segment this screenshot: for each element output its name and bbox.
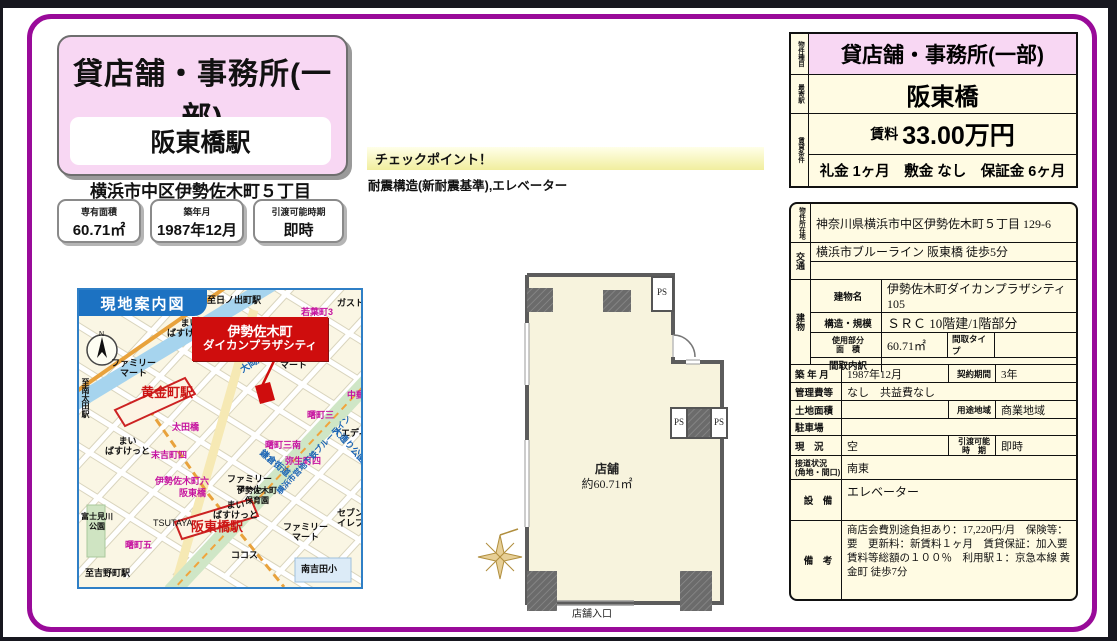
detail-contract-value: 3年 [996, 365, 1076, 382]
detail-equipment-value: エレベーター [842, 480, 1076, 520]
summary-station-value: 阪東橋 [809, 75, 1076, 113]
stat-built: 築年月 1987年12月 [150, 199, 244, 243]
plan-entrance-label: 店舗入口 [552, 605, 632, 620]
detail-mgmt-value: なし 共益費なし [842, 383, 1076, 400]
map-label-tsutaya: TSUTAYA [153, 518, 193, 528]
summary-type-value: 貸店舗・事務所(一部) [809, 34, 1076, 74]
detail-building-name-value: 伊勢佐木町ダイカンプラザシティ 105 [882, 280, 1076, 312]
plan-room-area: 約60.71㎡ [562, 475, 652, 492]
detail-building-label: 建物 [791, 280, 811, 364]
property-type-box: 貸店舗・事務所(一部) 阪東橋駅 [57, 35, 348, 176]
stat-handover: 引渡可能時期 即時 [253, 199, 344, 243]
detail-zoning-label: 用途地域 [949, 401, 996, 418]
map-label-familymart-4: ファミリー マート [283, 522, 328, 542]
area-map: N 現地案内図 至日ノ出町駅 若葉町3 ガスト まい ばすけっと ファミリー マ… [77, 288, 363, 589]
detail-used-area-label: 使用部分 面 積 [811, 333, 882, 357]
detail-location-value: 神奈川県横浜市中区伊勢佐木町５丁目 129-6 [811, 204, 1076, 242]
map-label-to-yoshinocho: 至吉野町駅 [85, 568, 130, 578]
map-label-to-minamiota: 至南太田駅 [80, 378, 90, 418]
page-frame: 貸店舗・事務所(一部) 阪東橋駅 横浜市中区伊勢佐木町５丁目 専有面積 60.7… [0, 0, 1117, 641]
detail-built-label: 築 年 月 [791, 365, 842, 382]
detail-built-value: 1987年12月 [842, 365, 949, 382]
summary-rent-value: 33.00万円 [902, 116, 1015, 152]
summary-rent-label: 賃料 [870, 124, 898, 144]
floor-plan: 店舗 約60.71㎡ PS PS PS 店舗入口 [442, 265, 762, 637]
map-label-seven: セブン イレブン [337, 508, 363, 528]
map-label-to-hinodecho: 至日ノ出町駅 [207, 295, 261, 305]
flyer-sheet: 貸店舗・事務所(一部) 阪東橋駅 横浜市中区伊勢佐木町５丁目 専有面積 60.7… [27, 14, 1097, 632]
detail-layout-type-label: 間取タイプ [948, 333, 995, 357]
map-label-maibasuketto-3: まい ばすけっと [213, 500, 258, 520]
detail-zoning-value: 商業地域 [996, 401, 1076, 418]
map-label-nakayubin: 中郵 [347, 390, 363, 400]
detail-location-label: 物件所在地 [791, 204, 811, 242]
map-label-fujimigawa-park: 富士見川 公園 [81, 512, 113, 532]
stat-area-label: 専有面積 [59, 205, 139, 218]
map-label-ota-bashi: 太田橋 [172, 422, 199, 432]
summary-table: 物件種目 貸店舗・事務所(一部) 最寄駅 阪東橋 賃貸条件 賃料 33.00万円… [789, 32, 1078, 188]
detail-contract-label: 契約期間 [949, 365, 996, 382]
detail-status-label: 現 況 [791, 436, 842, 455]
stat-built-label: 築年月 [152, 205, 242, 218]
detail-land-label: 土地面積 [791, 401, 842, 418]
map-property-callout: 伊勢佐木町 ダイカンプラザシティ [192, 317, 328, 361]
detail-access-value: 横浜市ブルーライン 阪東橋 徒歩5分 [811, 243, 1076, 261]
station-name-box: 阪東橋駅 [70, 117, 331, 165]
summary-terms-label: 賃貸条件 [791, 114, 809, 186]
detail-access-label: 交通 [791, 243, 811, 279]
summary-terms-value: 礼金 1ヶ月 敷金 なし 保証金 6ヶ月 [809, 155, 1076, 186]
detail-handover-label: 引渡可能 時 期 [949, 436, 996, 455]
detail-layout-type-value [995, 333, 1076, 357]
plan-ps-right: PS [703, 417, 735, 427]
detail-status-value: 空 [842, 436, 949, 455]
detail-parking-label: 駐車場 [791, 419, 842, 435]
map-label-gusto: ガスト [337, 298, 363, 308]
map-callout-line2: ダイカンプラザシティ [192, 339, 328, 354]
summary-station-label: 最寄駅 [791, 75, 809, 113]
stat-handover-value: 即時 [255, 219, 342, 240]
map-label-familymart-1: ファミリー マート [111, 358, 156, 378]
detail-structure-value: ＳＲＣ 10階建/1階部分 [882, 313, 1076, 332]
detail-mgmt-label: 管理費等 [791, 383, 842, 400]
detail-remarks-label: 備 考 [791, 521, 842, 599]
checkpoint-bar: チェックポイント！ [367, 147, 764, 170]
map-label-koganecho-station: 黄金町駅 [141, 388, 193, 398]
map-label-cocos: ココス [231, 550, 258, 560]
detail-structure-label: 構造・規模 [811, 313, 882, 332]
map-label-minamiyoshida: 南吉田小 [301, 564, 337, 574]
floor-plan-graphics [442, 265, 762, 637]
plan-compass [478, 529, 522, 579]
detail-used-area-value: 60.71㎡ [882, 333, 948, 357]
map-label-sueyoshicho4: 末吉町四 [151, 450, 187, 460]
detail-building-name-label: 建物名 [811, 280, 882, 312]
detail-remarks-value: 商店会費別途負担あり：17,220円/月 保険等：要 更新料：新賃料１ヶ月 賃貸… [842, 521, 1076, 599]
map-label-maibasuketto-2: まい ばすけっと [105, 436, 150, 456]
stat-area-value: 60.71㎡ [59, 219, 139, 240]
detail-road-value: 南東 [842, 456, 1076, 479]
stat-handover-label: 引渡可能時期 [255, 205, 342, 218]
detail-table: 物件所在地 神奈川県横浜市中区伊勢佐木町５丁目 129-6 交通 横浜市ブルーラ… [789, 202, 1078, 601]
map-label-akebonocho3s: 曙町三南 [265, 440, 301, 450]
stat-area: 専有面積 60.71㎡ [57, 199, 141, 243]
map-label-bandobashi: 阪東橋 [179, 488, 206, 498]
stat-built-value: 1987年12月 [152, 219, 242, 240]
checkpoint-text: 耐震構造(新耐震基準),エレベーター [368, 175, 768, 194]
detail-handover-value: 即時 [996, 436, 1076, 455]
plan-ps-left: PS [663, 417, 695, 427]
detail-parking-value [842, 419, 1076, 435]
detail-road-label: 接道状況 (角地・間口) [791, 456, 842, 479]
svg-text:N: N [99, 331, 104, 338]
map-label-isezakicho6: 伊勢佐木町六 [155, 476, 209, 486]
summary-type-label: 物件種目 [791, 34, 809, 74]
detail-land-value [842, 401, 949, 418]
detail-equipment-label: 設 備 [791, 480, 842, 520]
plan-ps-top: PS [645, 287, 679, 297]
map-title: 現地案内図 [79, 290, 207, 316]
map-callout-line1: 伊勢佐木町 [192, 324, 328, 339]
map-label-bandobashi-station: 阪東橋駅 [191, 522, 243, 532]
map-label-akebonocho5: 曙町五 [125, 540, 152, 550]
detail-access-value2 [811, 262, 1076, 280]
map-label-akebonocho3: 曙町三 [307, 410, 334, 420]
map-label-wakabacho3: 若葉町3 [301, 307, 333, 317]
